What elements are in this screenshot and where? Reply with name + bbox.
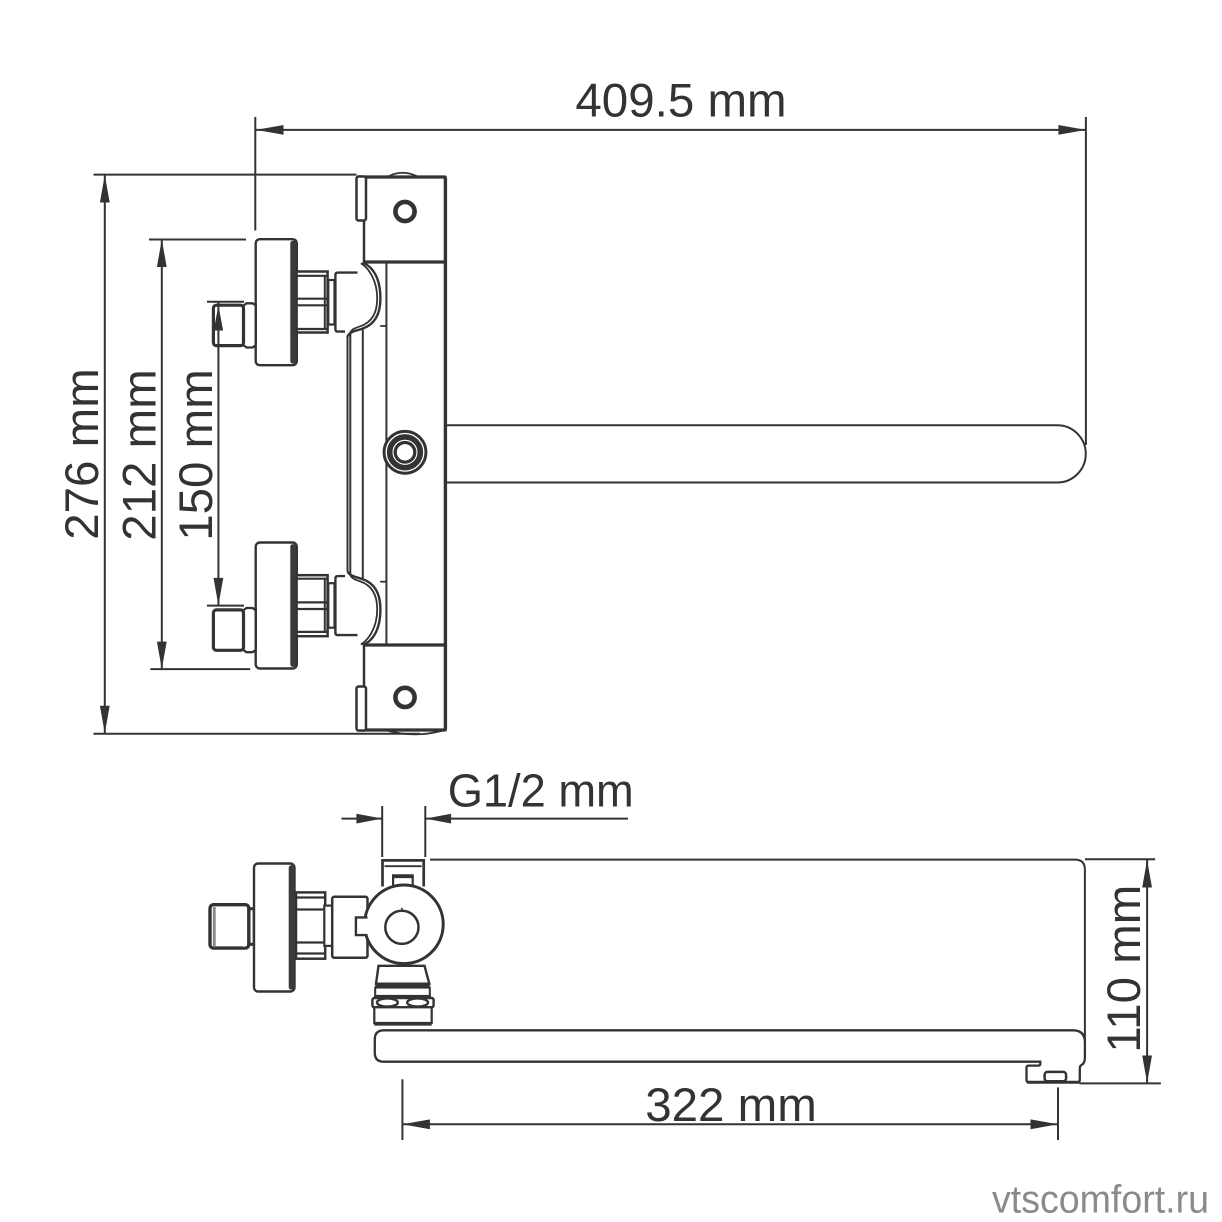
svg-text:212 mm: 212 mm [114,369,167,541]
svg-text:322 mm: 322 mm [645,1079,817,1132]
svg-text:409.5 mm: 409.5 mm [575,75,786,128]
svg-text:110 mm: 110 mm [1098,885,1151,1053]
svg-text:G1/2 mm: G1/2 mm [448,765,634,817]
svg-text:vtscomfort.ru: vtscomfort.ru [992,1179,1209,1222]
svg-text:276 mm: 276 mm [56,368,109,540]
svg-text:150 mm: 150 mm [170,369,223,541]
